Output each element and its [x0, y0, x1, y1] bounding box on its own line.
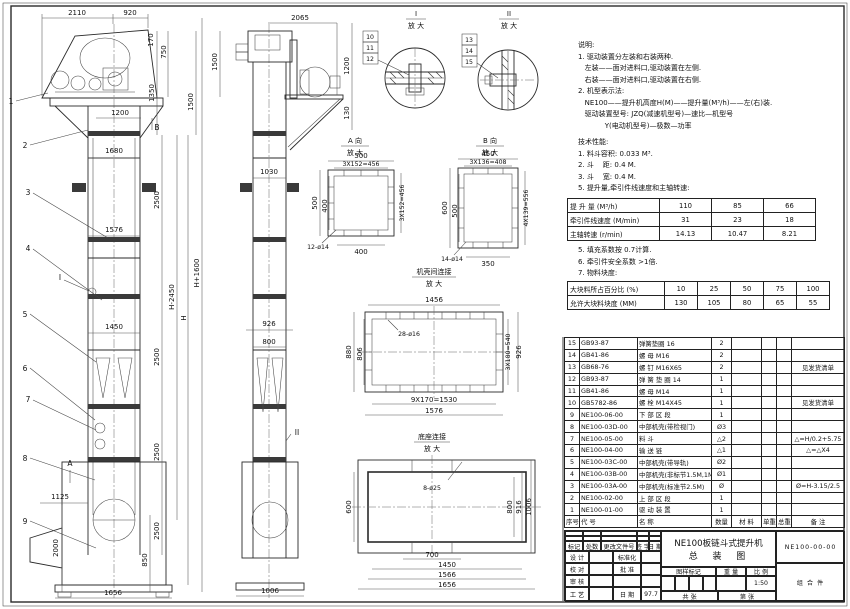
table-cell: 9: [565, 409, 580, 421]
stamp-box: [703, 576, 716, 591]
table-cell: 4: [565, 468, 580, 480]
table-cell: 3: [565, 480, 580, 492]
item-type: 组 合 件: [776, 563, 845, 602]
detail-view-1: I 放 大 10 11 12: [363, 10, 445, 108]
table-cell: [732, 409, 762, 421]
table-cell: 1: [712, 492, 732, 504]
table-cell: 2: [712, 349, 732, 361]
table-cell: 1: [712, 504, 732, 516]
table-cell: [777, 397, 792, 409]
dim-1030: 1030: [260, 168, 278, 176]
table-cell: [792, 492, 845, 504]
table-cell: 螺 母 M14: [638, 385, 712, 397]
table-row: 5NE100-03C-00中部机壳(带导轨)Ø2: [565, 456, 845, 468]
viewA-dim-400b: 400: [354, 248, 367, 256]
base-dim-600: 600: [345, 500, 353, 513]
scale-value: 1:50: [746, 576, 776, 591]
table-cell: [762, 338, 777, 350]
table-cell: [792, 468, 845, 480]
table-header-row: 序号 代 号 名 称 数量 材 料 单重 总重 备 注: [565, 516, 845, 528]
casing-dim-1576: 1576: [425, 407, 443, 415]
note-line: NE100——提升机高度H(M)——提升量(M³/h)——左(右)装.: [578, 98, 843, 110]
viewA-dim-456r: 3X152=456: [399, 184, 406, 221]
note-line: 驱动装置型号: JZQ(减速机型号)—速比—机型号: [578, 109, 843, 121]
front-view: [30, 24, 172, 598]
table-cell: 2: [565, 492, 580, 504]
table-cell: NE100-04-00: [580, 445, 638, 457]
tech-title: 技术性能:: [578, 137, 843, 149]
table-cell: 弹 簧 垫 圈 14: [638, 373, 712, 385]
leader-7: 7: [26, 395, 31, 404]
dim-2500-3: 2500: [153, 443, 161, 461]
rev-hdr-file: 更改文件号: [601, 541, 637, 551]
table-cell: [777, 421, 792, 433]
dim-920: 920: [123, 9, 136, 17]
table-cell: [732, 385, 762, 397]
drawing-type: 总 装 图: [689, 549, 748, 562]
tech-block-2: 5. 填充系数按 0.7计算.6. 牵引件安全系数 >1倍.7. 物料块度:: [578, 245, 843, 280]
casing-dim-806: 806: [356, 347, 364, 361]
marker-I: I: [59, 273, 61, 282]
dim-1200-side: 1200: [343, 57, 351, 75]
dim-2500-4: 2500: [153, 522, 161, 540]
table-cell: [777, 480, 792, 492]
table-cell: 1: [712, 397, 732, 409]
viewB-dim-350b: 350: [481, 260, 494, 268]
table-cell: [792, 504, 845, 516]
table-cell: GB5782-86: [580, 397, 638, 409]
sig-cell: [589, 563, 613, 575]
dim-1200: 1200: [111, 109, 129, 117]
table-cell: [777, 456, 792, 468]
hdr-name: 名 称: [638, 516, 712, 528]
view-B: B 向 放 大 450 3X136=408 600 500 4X139=556 …: [441, 136, 530, 268]
table-cell: 螺 母 M16: [638, 349, 712, 361]
table-cell: [732, 468, 762, 480]
table-cell: 上 部 区 段: [638, 492, 712, 504]
table-cell: [777, 445, 792, 457]
base-view: 底座连接 放 大 8-ø25 600 800 916 1006 700 1450…: [345, 432, 542, 589]
leader-3: 3: [26, 188, 31, 197]
table-cell: [792, 421, 845, 433]
sheet-total: 共 张: [661, 591, 718, 602]
table-cell: 中部机壳(带检视门): [638, 421, 712, 433]
viewA-dim-456t: 3X152=456: [343, 161, 380, 168]
table-cell: 31: [660, 213, 712, 227]
stamp-box: [675, 576, 689, 591]
table-cell: 65: [764, 296, 797, 310]
table-cell: Ø: [712, 480, 732, 492]
base-sub: 放 大: [424, 444, 440, 453]
table-cell: [762, 385, 777, 397]
table-cell: NE100-05-00: [580, 433, 638, 445]
dim-H-2450: H-2450: [168, 284, 176, 310]
table-cell: [777, 361, 792, 373]
casing-joint-view: 机壳间连接 放 大 1456 28-ø16 880 806 3X180=540 …: [345, 267, 523, 415]
table-cell: [762, 421, 777, 433]
table-cell: 14.13: [660, 227, 712, 241]
table-cell: 1: [712, 385, 732, 397]
base-holes: 8-ø25: [423, 485, 441, 492]
leader-6: 6: [23, 364, 28, 373]
rev-hdr-mark: 标记: [565, 541, 583, 551]
leader-2: 2: [23, 141, 28, 150]
leader-9: 9: [23, 517, 28, 526]
dim-1125: 1125: [51, 493, 69, 501]
table-cell: 25: [698, 282, 731, 296]
engineering-drawing-sheet: { "doc": { "type_label": "总装图(装配图)", "fr…: [0, 0, 850, 609]
leader-1: 1: [9, 97, 14, 106]
notes-lines: 1. 驱动装置分左装和右装两种. 左装——面对进料口,驱动装置在左侧. 右装——…: [578, 52, 843, 133]
dim-130: 130: [343, 106, 351, 119]
table-cell: [762, 361, 777, 373]
dim-170: 170: [147, 33, 155, 46]
hdr-totalweight: 总重: [777, 516, 792, 528]
table-cell: 105: [698, 296, 731, 310]
stamp-box: [689, 576, 703, 591]
speed-table-body: 提 升 量 (M³/h)1108566牵引件线速度 (M/min)312318主…: [568, 199, 816, 241]
sig-cell: [589, 575, 613, 587]
dim-H+1600: H+1600: [193, 259, 201, 288]
table-row: 11GB41-86螺 母 M141: [565, 385, 845, 397]
table-row: 14GB41-86螺 母 M162: [565, 349, 845, 361]
note-line: 5. 提升量,牵引件线速度和主轴转速:: [578, 183, 843, 195]
table-cell: 中部机壳(带导轨): [638, 456, 712, 468]
parts-list-table: 15GB93-87弹簧垫圈 16214GB41-86螺 母 M16213GB68…: [564, 337, 845, 528]
table-row: 允许大块料块度 (MM)130105806555: [568, 296, 830, 310]
sig-cell: [613, 575, 641, 587]
casing-sub: 放 大: [426, 279, 442, 288]
dim-926-side: 926: [262, 320, 276, 328]
table-row: 2NE100-02-00上 部 区 段1: [565, 492, 845, 504]
casing-dim-540: 3X180=540: [505, 333, 512, 370]
table-cell: 5: [565, 456, 580, 468]
lump-table-body: 大块料所占百分比 (%)10255075100允许大块料块度 (MM)13010…: [568, 282, 830, 310]
product-name: NE100板链斗式提升机: [674, 537, 762, 549]
table-cell: Ø2: [712, 456, 732, 468]
table-row: 3NE100-03A-00中部机壳(标准节2.5M)ØØ=H-3.15/2.5: [565, 480, 845, 492]
row-std: 标准化: [613, 551, 641, 563]
table-cell: [792, 338, 845, 350]
table-cell: GB68-76: [580, 361, 638, 373]
table-cell: [792, 409, 845, 421]
table-row: 1NE100-01-00驱 动 装 置1: [565, 504, 845, 516]
dim-1656-front: 1656: [104, 589, 122, 597]
viewB-dim-408t: 3X136=408: [470, 159, 507, 166]
table-cell: [777, 385, 792, 397]
detail2-tag-13: 13: [465, 37, 473, 44]
table-cell: 螺 钉 M16X65: [638, 361, 712, 373]
parts-rows: 15GB93-87弹簧垫圈 16214GB41-86螺 母 M16213GB68…: [565, 338, 845, 516]
notes-block: 说明: 1. 驱动装置分左装和右装两种. 左装——面对进料口,驱动装置在左侧. …: [578, 40, 843, 132]
table-row: 牵引件线速度 (M/min)312318: [568, 213, 816, 227]
row-check: 校 对: [565, 563, 589, 575]
table-cell: [762, 349, 777, 361]
table-cell: NE100-02-00: [580, 492, 638, 504]
table-cell: [762, 397, 777, 409]
viewB-dim-450t: 450: [481, 150, 494, 158]
date-value: 97.7: [641, 587, 661, 602]
row-audit: 审 核: [565, 575, 589, 587]
table-cell: NE100-01-00: [580, 504, 638, 516]
table-cell: [792, 456, 845, 468]
detail2-title: II: [507, 10, 511, 18]
hdr-qty: 数量: [712, 516, 732, 528]
viewA-dim-500t: 500: [354, 152, 367, 160]
row-date-label: 日 期: [613, 587, 641, 602]
sheet-no: 第 张: [718, 591, 776, 602]
note-line: 3. 斗 宽: 0.4 M.: [578, 172, 843, 184]
base-dim-1450: 1450: [438, 561, 456, 569]
table-cell: [777, 468, 792, 480]
leader-5: 5: [23, 310, 28, 319]
note-line: 1. 驱动装置分左装和右装两种.: [578, 52, 843, 64]
detail2-tag-14: 14: [465, 48, 473, 55]
rev-hdr-date: 日 期: [649, 541, 661, 551]
hdr-unitweight: 单重: [762, 516, 777, 528]
table-cell: Ø=H-3.15/2.5: [792, 480, 845, 492]
table-cell: 见发货清单: [792, 397, 845, 409]
leader-8: 8: [23, 454, 28, 463]
detail1-tag-11: 11: [366, 45, 374, 52]
table-cell: 80: [731, 296, 764, 310]
hdr-remark: 备 注: [792, 516, 845, 528]
marker-A: A: [67, 459, 73, 468]
dim-1680: 1680: [105, 147, 123, 155]
base-title: 底座连接: [418, 432, 446, 441]
table-cell: 下 部 区 段: [638, 409, 712, 421]
table-cell: [762, 492, 777, 504]
table-cell: [732, 480, 762, 492]
table-cell: [777, 492, 792, 504]
note-line: 右装——面对进料口,驱动装置在右侧.: [578, 75, 843, 87]
table-cell: [762, 468, 777, 480]
detail1-tag-10: 10: [366, 34, 374, 41]
base-dim-700: 700: [425, 551, 438, 559]
dim-1006-side: 1006: [261, 587, 279, 595]
table-cell: [762, 456, 777, 468]
casing-dim-1530: 9X170=1530: [411, 396, 457, 404]
hdr-code: 代 号: [580, 516, 638, 528]
sig-cell: [641, 575, 661, 587]
sig-cell: [589, 551, 613, 563]
table-cell: GB41-86: [580, 349, 638, 361]
title-block: 标记 处数 更改文件号 签 字 日 期 设 计 标准化 校 对 批 准 审 核 …: [564, 530, 844, 601]
table-cell: 110: [660, 199, 712, 213]
table-cell: 14: [565, 349, 580, 361]
sig-cell: [641, 551, 661, 563]
side-view-dimensions: 2065 1500 1200 130 1030 926 800 1006 II: [211, 14, 352, 596]
stamp-box: [661, 576, 675, 591]
viewA-holes: 12-ø14: [307, 244, 329, 251]
viewA-title: A 向: [348, 136, 362, 145]
table-cell: 驱 动 装 置: [638, 504, 712, 516]
marker-II: II: [295, 428, 299, 437]
table-cell: NE100-03C-00: [580, 456, 638, 468]
table-cell: 10.47: [712, 227, 764, 241]
table-cell: GB93-87: [580, 338, 638, 350]
dim-1500-side: 1500: [211, 53, 219, 71]
table-cell: △1: [712, 445, 732, 457]
viewB-dim-556r: 4X139=556: [523, 189, 530, 226]
table-row: 主轴转速 (r/min)14.1310.478.21: [568, 227, 816, 241]
table-cell: [777, 409, 792, 421]
table-cell: 2: [712, 361, 732, 373]
dim-2065: 2065: [291, 14, 309, 22]
table-cell: [762, 445, 777, 457]
base-dim-1006: 1006: [525, 498, 533, 516]
detail1-sub: 放 大: [408, 21, 424, 30]
rev-hdr-count: 处数: [583, 541, 601, 551]
casing-holes: 28-ø16: [398, 331, 420, 338]
table-row: 提 升 量 (M³/h)1108566: [568, 199, 816, 213]
table-cell: NE100-03B-00: [580, 468, 638, 480]
table-cell: 55: [797, 296, 830, 310]
table-cell: Ø1: [712, 468, 732, 480]
note-line: 7. 物料块度:: [578, 268, 843, 280]
table-cell: 6: [565, 445, 580, 457]
table-cell: [792, 385, 845, 397]
tech-lines-1: 1. 料斗容积: 0.033 M³.2. 斗 距: 0.4 M.3. 斗 宽: …: [578, 149, 843, 195]
drawing-title-cell: NE100板链斗式提升机 总 装 图: [661, 531, 776, 567]
table-cell: 提 升 量 (M³/h): [568, 199, 660, 213]
table-row: 13GB68-76螺 钉 M16X652见发货清单: [565, 361, 845, 373]
table-cell: 66: [764, 199, 816, 213]
table-row: 7NE100-05-00料 斗△2△=H/0.2+5.75: [565, 433, 845, 445]
table-cell: [732, 421, 762, 433]
table-cell: NE100-03D-00: [580, 421, 638, 433]
table-cell: 18: [764, 213, 816, 227]
table-cell: [762, 480, 777, 492]
view-A: A 向 放 大 500 3X152=456 500 400 3X152=456 …: [307, 136, 406, 256]
speed-table: 提 升 量 (M³/h)1108566牵引件线速度 (M/min)312318主…: [567, 198, 816, 241]
detail1-tag-12: 12: [366, 56, 374, 63]
viewB-holes: 14-ø14: [441, 256, 463, 263]
table-cell: 75: [764, 282, 797, 296]
dim-850: 850: [141, 553, 149, 566]
table-row: 12GB93-87弹 簧 垫 圈 141: [565, 373, 845, 385]
table-row: 10GB5782-86螺 栓 M14X451见发货清单: [565, 397, 845, 409]
table-cell: [762, 373, 777, 385]
base-dim-1566: 1566: [438, 571, 456, 579]
detail2-sub: 放 大: [501, 21, 517, 30]
table-cell: [777, 504, 792, 516]
casing-title: 机壳间连接: [417, 267, 452, 276]
table-row: 大块料所占百分比 (%)10255075100: [568, 282, 830, 296]
base-dim-916: 916: [515, 500, 523, 514]
table-cell: Ø3: [712, 421, 732, 433]
table-cell: 7: [565, 433, 580, 445]
table-cell: [732, 349, 762, 361]
table-cell: 1: [712, 373, 732, 385]
table-cell: △=△X4: [792, 445, 845, 457]
base-dim-1656: 1656: [438, 581, 456, 589]
table-cell: 12: [565, 373, 580, 385]
table-cell: NE100-03A-00: [580, 480, 638, 492]
table-cell: 11: [565, 385, 580, 397]
table-cell: [762, 504, 777, 516]
row-design: 设 计: [565, 551, 589, 563]
dim-H: H: [180, 315, 188, 320]
table-row: 8NE100-03D-00中部机壳(带检视门)Ø3: [565, 421, 845, 433]
row-approve: 批 准: [613, 563, 641, 575]
table-cell: 中部机壳(标准节2.5M): [638, 480, 712, 492]
dim-2110: 2110: [68, 9, 86, 17]
viewB-dim-500l: 500: [451, 204, 459, 217]
front-view-leaders: 1 2 3 4 5 6 7 8 9 B A I: [9, 93, 160, 548]
table-cell: 50: [731, 282, 764, 296]
table-row: 4NE100-03B-00中部机壳(非标节1.5M,1M)Ø1: [565, 468, 845, 480]
front-view-dimensions: 2110 920 170 750 1350 1500 1200 1680 157…: [40, 9, 202, 598]
table-cell: [732, 338, 762, 350]
note-line: 左装——面对进料口,驱动装置在左侧.: [578, 63, 843, 75]
lump-table: 大块料所占百分比 (%)10255075100允许大块料块度 (MM)13010…: [567, 281, 830, 310]
table-cell: [777, 433, 792, 445]
table-cell: [762, 433, 777, 445]
table-row: 9NE100-06-00下 部 区 段1: [565, 409, 845, 421]
table-cell: 1: [565, 504, 580, 516]
table-cell: 见发货清单: [792, 361, 845, 373]
table-row: 15GB93-87弹簧垫圈 162: [565, 338, 845, 350]
table-cell: 主轴转速 (r/min): [568, 227, 660, 241]
dim-1500: 1500: [187, 93, 195, 111]
marker-B: B: [154, 123, 159, 132]
table-cell: 1: [712, 409, 732, 421]
table-cell: 螺 栓 M14X45: [638, 397, 712, 409]
dim-800-side: 800: [262, 338, 275, 346]
notes-title: 说明:: [578, 40, 843, 52]
table-cell: GB93-87: [580, 373, 638, 385]
table-cell: [777, 338, 792, 350]
hdr-no: 序号: [565, 516, 580, 528]
casing-dim-880: 880: [345, 345, 353, 358]
table-cell: 料 斗: [638, 433, 712, 445]
table-cell: 大块料所占百分比 (%): [568, 282, 665, 296]
dim-1350: 1350: [148, 84, 156, 102]
base-dim-800: 800: [506, 500, 514, 513]
table-cell: 13: [565, 361, 580, 373]
table-cell: [732, 492, 762, 504]
viewA-dim-400l: 400: [321, 199, 329, 212]
table-cell: [732, 361, 762, 373]
table-cell: [732, 456, 762, 468]
table-cell: [777, 373, 792, 385]
table-cell: △=H/0.2+5.75: [792, 433, 845, 445]
dim-2000: 2000: [52, 539, 60, 557]
table-cell: [792, 349, 845, 361]
table-cell: 23: [712, 213, 764, 227]
table-row: 6NE100-04-00输 送 链△1△=△X4: [565, 445, 845, 457]
table-cell: 8.21: [764, 227, 816, 241]
hdr-material: 材 料: [732, 516, 762, 528]
stamp-hdr-scale: 比 例: [746, 567, 776, 576]
dim-750: 750: [160, 45, 168, 58]
side-view: [236, 24, 343, 598]
dim-1450: 1450: [105, 323, 123, 331]
table-cell: 输 送 链: [638, 445, 712, 457]
table-cell: 10: [665, 282, 698, 296]
table-cell: [777, 349, 792, 361]
row-craft: 工 艺: [565, 587, 589, 602]
drawing-number: NE100-00-00: [776, 531, 845, 563]
note-line: 2. 斗 距: 0.4 M.: [578, 160, 843, 172]
table-cell: [732, 397, 762, 409]
viewA-dim-500l: 500: [311, 196, 319, 209]
note-line: 5. 填充系数按 0.7计算.: [578, 245, 843, 257]
rev-hdr-sign: 签 字: [637, 541, 649, 551]
table-cell: 8: [565, 421, 580, 433]
dim-1576: 1576: [105, 226, 123, 234]
